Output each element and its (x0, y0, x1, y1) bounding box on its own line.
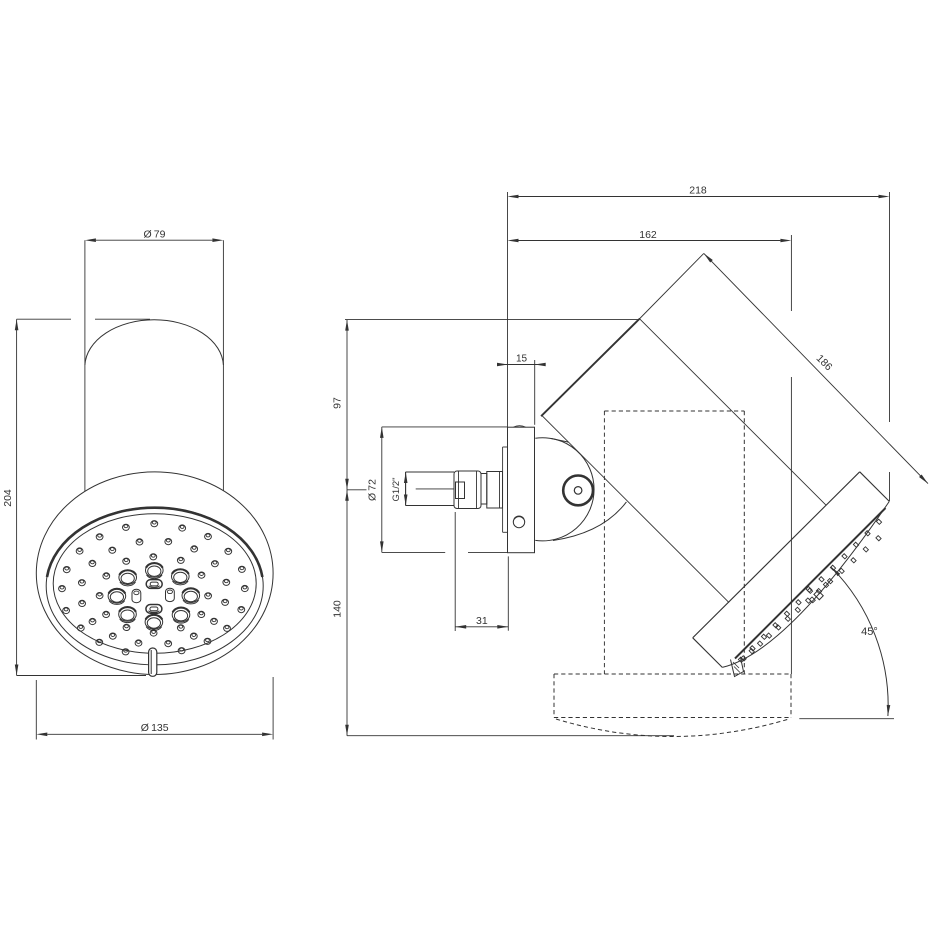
svg-text:Ø 135: Ø 135 (141, 722, 169, 734)
svg-text:218: 218 (689, 185, 707, 197)
svg-text:45°: 45° (861, 626, 878, 638)
svg-text:186: 186 (814, 352, 835, 373)
svg-text:G1/2": G1/2" (391, 478, 402, 502)
svg-text:97: 97 (332, 397, 344, 409)
svg-text:204: 204 (2, 489, 14, 507)
svg-text:Ø 72: Ø 72 (367, 479, 379, 501)
svg-text:Ø 79: Ø 79 (144, 228, 166, 240)
svg-text:140: 140 (332, 600, 344, 618)
svg-text:31: 31 (476, 615, 488, 627)
svg-text:162: 162 (639, 229, 657, 241)
svg-text:15: 15 (516, 354, 528, 365)
